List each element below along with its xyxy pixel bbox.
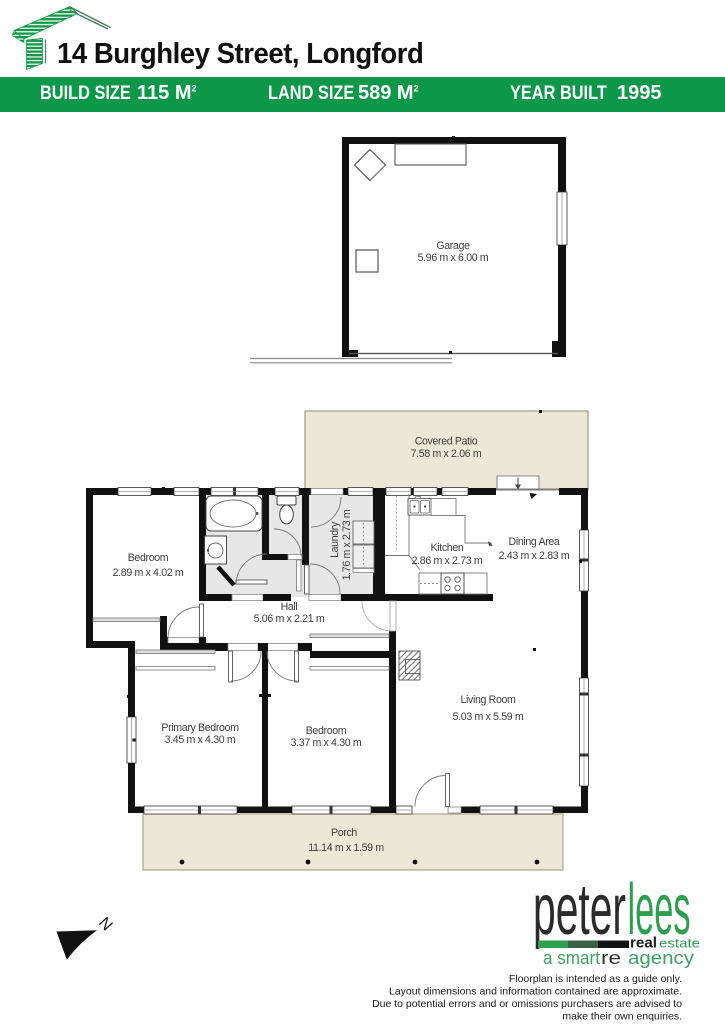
svg-text:2.43 m x 2.83 m: 2.43 m x 2.83 m xyxy=(499,550,570,562)
svg-text:Layout dimensions and informat: Layout dimensions and information contai… xyxy=(389,986,682,998)
svg-text:Floorplan is intended as a gui: Floorplan is intended as a guide only. xyxy=(509,973,682,985)
svg-text:11.14 m x 1.59 m: 11.14 m x 1.59 m xyxy=(308,842,384,854)
svg-text:3.45 m x 4.30 m: 3.45 m x 4.30 m xyxy=(165,734,236,746)
svg-text:Hall: Hall xyxy=(281,601,298,613)
svg-text:Bedroom: Bedroom xyxy=(306,725,347,737)
svg-text:N: N xyxy=(95,914,115,934)
svg-text:Due to potential errors and or: Due to potential errors and or omissions… xyxy=(372,998,682,1010)
svg-text:Covered Patio: Covered Patio xyxy=(415,436,478,448)
svg-text:5.96 m x 6.00 m: 5.96 m x 6.00 m xyxy=(418,252,489,264)
svg-text:3.37 m x 4.30 m: 3.37 m x 4.30 m xyxy=(291,737,362,749)
svg-text:Primary Bedroom: Primary Bedroom xyxy=(161,722,239,734)
svg-text:agency: agency xyxy=(628,948,694,968)
svg-text:5.06 m x 2.21 m: 5.06 m x 2.21 m xyxy=(254,613,325,625)
svg-text:Kitchen: Kitchen xyxy=(431,542,464,554)
svg-text:make their own enquiries.: make their own enquiries. xyxy=(562,1011,682,1023)
svg-text:Laundry: Laundry xyxy=(329,521,341,558)
svg-text:1.76 m x 2.73 m: 1.76 m x 2.73 m xyxy=(341,509,353,580)
svg-text:5.03 m x 5.59 m: 5.03 m x 5.59 m xyxy=(453,711,524,723)
svg-text:Garage: Garage xyxy=(436,240,470,252)
svg-text:a smart: a smart xyxy=(543,948,600,968)
svg-text:peter: peter xyxy=(533,880,626,950)
svg-text:2.89 m x 4.02 m: 2.89 m x 4.02 m xyxy=(113,567,184,579)
svg-text:7.58 m x 2.06 m: 7.58 m x 2.06 m xyxy=(411,448,482,460)
svg-text:Dining Area: Dining Area xyxy=(509,536,560,548)
svg-text:Living Room: Living Room xyxy=(460,694,516,706)
svg-text:Bedroom: Bedroom xyxy=(128,552,169,564)
svg-text:re: re xyxy=(601,948,621,968)
svg-text:2.86 m x 2.73 m: 2.86 m x 2.73 m xyxy=(412,555,483,567)
svg-text:Porch: Porch xyxy=(331,827,357,839)
